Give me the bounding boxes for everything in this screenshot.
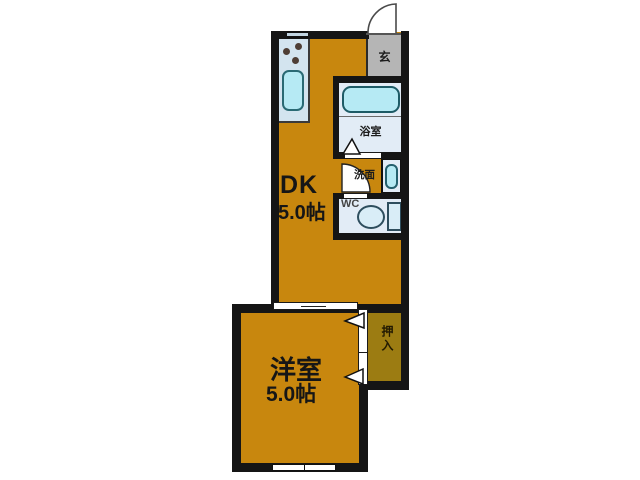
sliding-door-triangle-icon (342, 310, 368, 330)
dk-western-sliding-door (273, 302, 358, 310)
window-icon (287, 31, 308, 38)
entrance-label: 玄 (378, 48, 390, 65)
window-divider (304, 465, 305, 470)
dk-room-size: 5.0帖 (278, 196, 326, 225)
sliding-door-overlap-mark (301, 306, 326, 307)
wall-top (271, 31, 369, 39)
bathtub-icon (342, 86, 400, 113)
wall-bathroom-left (333, 76, 339, 159)
floor-plan: 玄 浴室 WC (0, 0, 640, 480)
western-room-size: 5.0帖 (266, 378, 316, 408)
bathtub-deck-line (339, 116, 402, 117)
washbasin-icon (385, 164, 398, 189)
wall-bathroom-top (333, 76, 409, 83)
stove-burner-icon (292, 57, 299, 64)
entrance-door-swing-icon (360, 0, 405, 40)
wall-right (401, 31, 409, 390)
washroom-label: 洗面 (354, 167, 375, 182)
kitchen-sink-icon (282, 70, 304, 111)
wall-right-lower (359, 385, 368, 472)
toilet-icon (357, 205, 385, 229)
entrance-area: 玄 (366, 35, 401, 77)
sliding-door-triangle-icon (342, 366, 368, 386)
wc-label: WC (341, 198, 359, 210)
wall-wc-bottom (333, 233, 409, 240)
wall-left-lower (232, 304, 241, 472)
toilet-tank (387, 202, 402, 231)
bathroom-door-triangle-icon (340, 136, 364, 156)
wall-left-upper (271, 31, 279, 309)
closet-label: 押入 (379, 325, 396, 353)
window-icon (272, 464, 336, 471)
stove-burner-icon (283, 48, 290, 55)
stove-burner-icon (295, 43, 302, 50)
closet-door-track-mark (359, 352, 367, 353)
